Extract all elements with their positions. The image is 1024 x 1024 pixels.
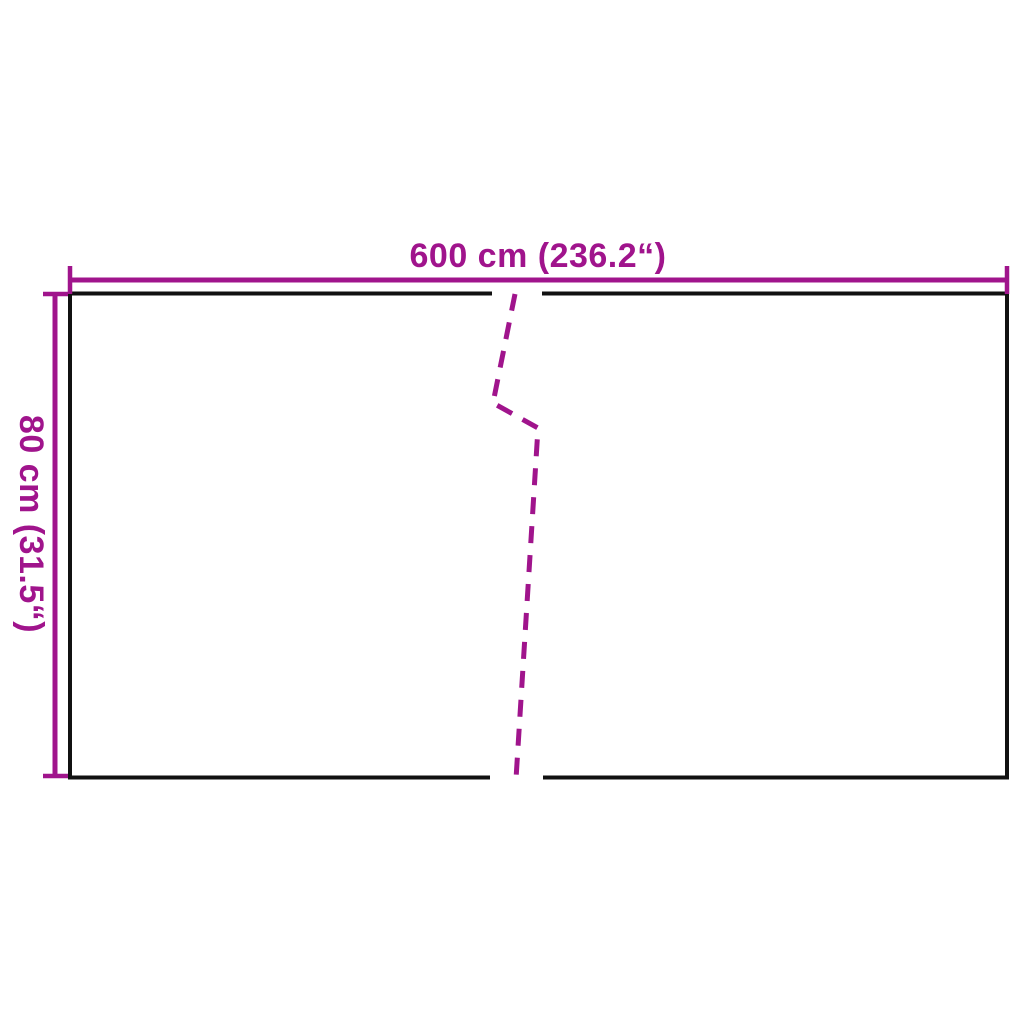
break-line: [493, 294, 538, 779]
panel-outline: [70, 294, 1007, 778]
product-dimension-image: 600 cm (236.2“) 80 cm (31.5“): [0, 0, 1024, 1024]
height-dimension-label: 80 cm (31.5“): [12, 415, 50, 633]
width-dimension: 600 cm (236.2“): [70, 237, 1008, 294]
height-dimension: 80 cm (31.5“): [12, 293, 68, 777]
width-dimension-label: 600 cm (236.2“): [410, 237, 667, 275]
dimension-diagram: 600 cm (236.2“) 80 cm (31.5“): [0, 0, 1024, 1024]
